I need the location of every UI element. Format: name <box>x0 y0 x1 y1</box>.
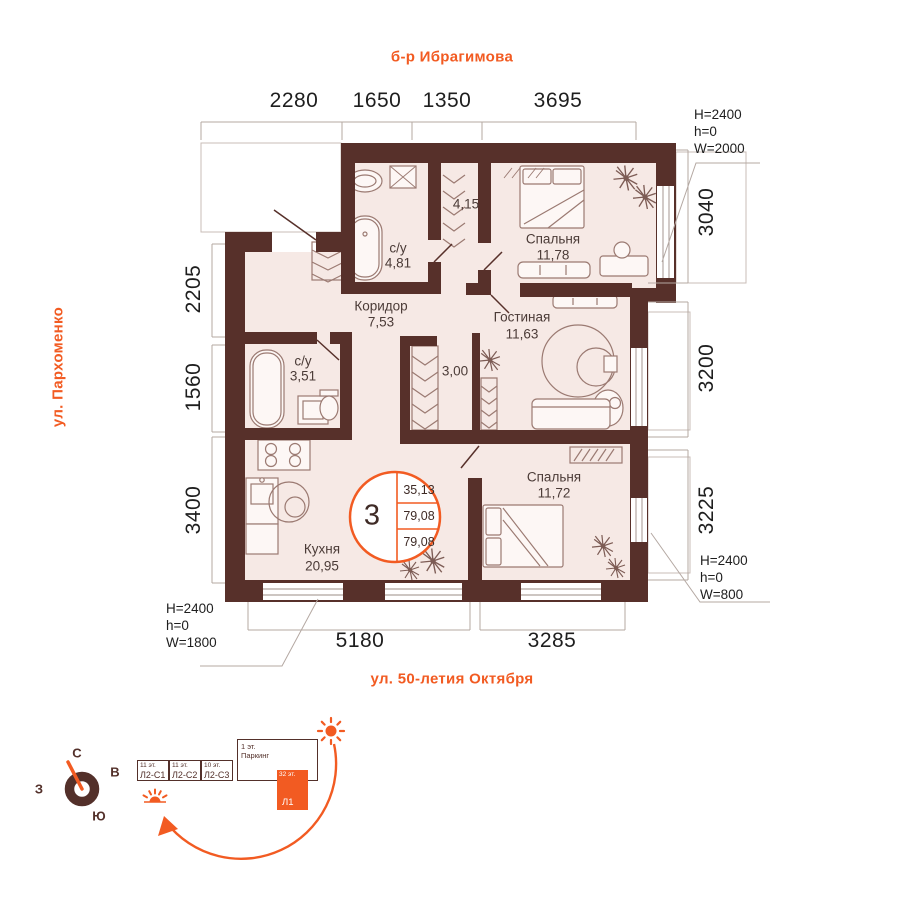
scheme-section-3: 10 эт. Л2-С3 <box>201 760 233 781</box>
room-closet2-area: 3,00 <box>442 364 468 379</box>
floorplan-page: б-р Ибрагимова ул. Пархоменко ул. 50-лет… <box>0 0 900 900</box>
dim-top-1: 2280 <box>270 89 319 113</box>
compass <box>68 762 95 802</box>
stamp-living-area: 35,13 <box>403 483 434 497</box>
dim-bottom-1: 5180 <box>336 629 385 653</box>
room-living-name: Гостиная <box>494 310 551 325</box>
dim-left-1: 2205 <box>182 265 206 314</box>
scheme-tower-floors: 32 эт. <box>277 770 308 779</box>
stamp-rooms-count: 3 <box>364 500 380 533</box>
scheme-section-2-floors: 11 эт. <box>170 761 200 770</box>
annotation-line: H=2400 <box>694 106 745 123</box>
annotation-line: W=800 <box>700 586 748 603</box>
room-hall-name: Коридор <box>354 299 407 314</box>
compass-west: З <box>35 782 43 797</box>
room-bath1-area: 4,81 <box>385 256 411 271</box>
scheme-section-1-floors: 11 эт. <box>138 761 168 770</box>
annotation-line: h=0 <box>694 123 745 140</box>
dim-right-2: 3200 <box>695 344 719 393</box>
stamp-area: 79,08 <box>403 509 434 523</box>
dim-left-2: 1560 <box>182 363 206 412</box>
scheme-section-3-floors: 10 эт. <box>202 761 232 770</box>
annotation-line: W=1800 <box>166 634 217 651</box>
room-bedroom2-name: Спальня <box>527 470 581 485</box>
scheme-section-3-label: Л2-С3 <box>202 770 232 780</box>
room-hall-area: 7,53 <box>368 315 394 330</box>
window-annotation-right-top: H=2400 h=0 W=2000 <box>694 106 745 157</box>
scheme-parking-floors: 1 эт. <box>238 740 317 751</box>
dim-right-3: 3225 <box>695 486 719 535</box>
dim-left-3: 3400 <box>182 486 206 535</box>
scheme-tower-label: Л1 <box>280 798 294 808</box>
window-annotation-bottom-left: H=2400 h=0 W=1800 <box>166 600 217 651</box>
dim-bottom-2: 3285 <box>528 629 577 653</box>
annotation-line: H=2400 <box>700 552 748 569</box>
floorplan-drawing <box>0 0 900 900</box>
annotation-line: h=0 <box>700 569 748 586</box>
scheme-section-1: 11 эт. Л2-С1 <box>137 760 169 781</box>
scheme-tower: 32 эт. Л1 <box>277 770 308 810</box>
dim-top-4: 3695 <box>534 89 583 113</box>
room-bedroom1-name: Спальня <box>526 232 580 247</box>
dim-top-3: 1350 <box>423 89 472 113</box>
annotation-line: H=2400 <box>166 600 217 617</box>
annotation-line: W=2000 <box>694 140 745 157</box>
dim-right-1: 3040 <box>695 188 719 237</box>
room-bedroom1-area: 11,78 <box>537 248 570 263</box>
room-bath2-area: 3,51 <box>290 369 316 384</box>
compass-south: Ю <box>92 809 105 824</box>
street-top: б-р Ибрагимова <box>391 49 513 66</box>
annotation-line: h=0 <box>166 617 217 634</box>
compass-north: С <box>72 746 81 761</box>
room-closet1-area: 4,15 <box>453 197 479 212</box>
street-left: ул. Пархоменко <box>50 307 67 427</box>
scheme-section-1-label: Л2-С1 <box>138 770 168 780</box>
dim-top-2: 1650 <box>353 89 402 113</box>
sun-icon <box>318 718 344 744</box>
scheme-section-2: 11 эт. Л2-С2 <box>169 760 201 781</box>
window-annotation-right-bottom: H=2400 h=0 W=800 <box>700 552 748 603</box>
stamp-total-area: 79,08 <box>403 535 434 549</box>
street-bottom: ул. 50-летия Октября <box>371 671 534 688</box>
room-bath2-name: с/у <box>294 354 311 369</box>
scheme-parking-label: Паркинг <box>238 751 317 760</box>
scheme-section-2-label: Л2-С2 <box>170 770 200 780</box>
sunset-icon <box>144 790 167 803</box>
room-kitchen-area: 20,95 <box>305 559 339 574</box>
room-bath1-name: с/у <box>389 241 406 256</box>
room-living-area: 11,63 <box>506 327 539 342</box>
room-kitchen-name: Кухня <box>304 542 340 557</box>
room-bedroom2-area: 11,72 <box>538 486 571 501</box>
compass-east: В <box>110 765 119 780</box>
